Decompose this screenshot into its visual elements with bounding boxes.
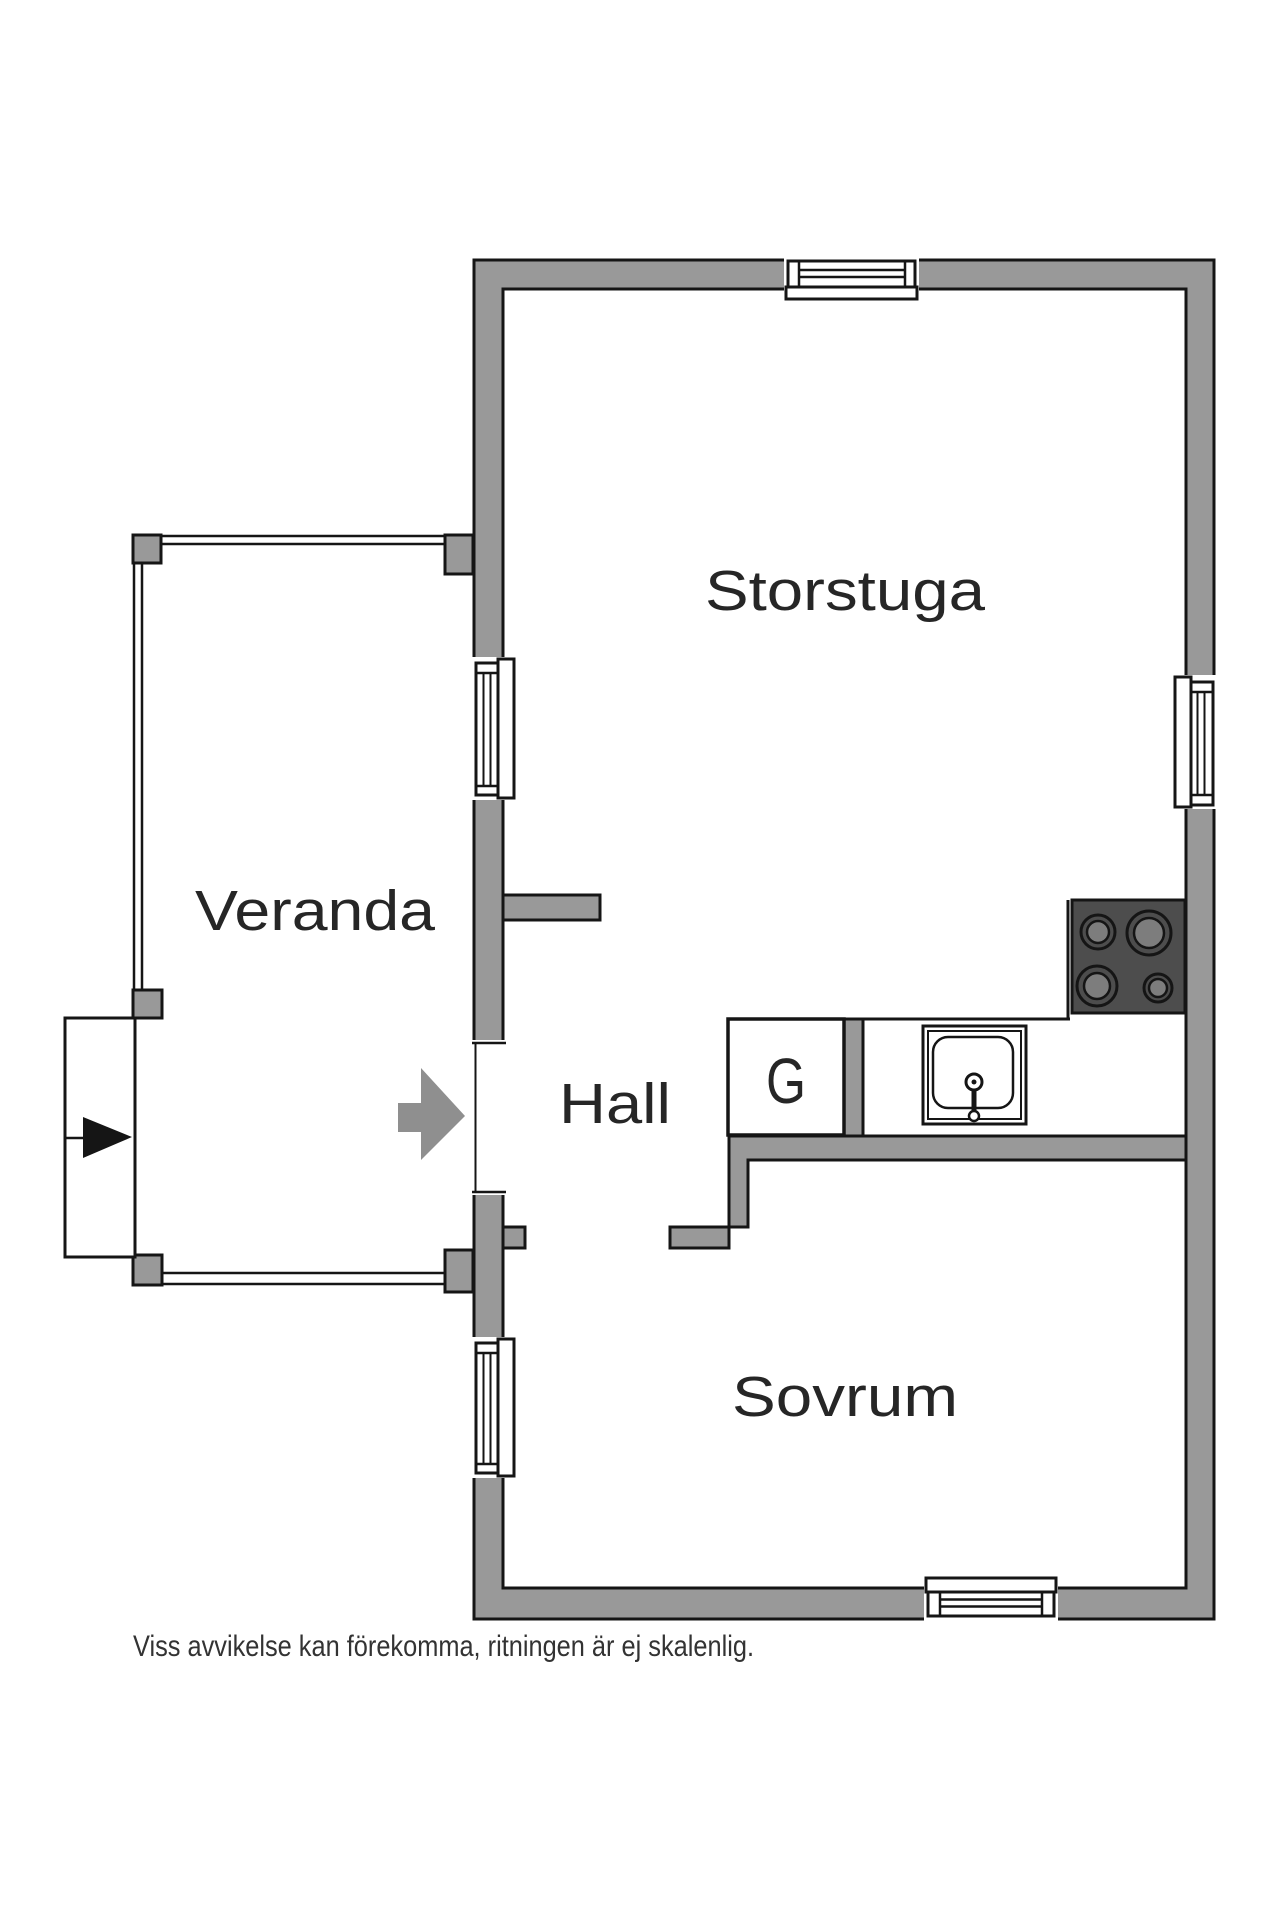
hall-sovrum-jamb-stub xyxy=(503,1227,525,1248)
window-storstuga-right xyxy=(1173,675,1218,809)
kitchen-area xyxy=(863,900,1185,1124)
window-storstuga-left xyxy=(471,657,517,800)
room-label-veranda: Veranda xyxy=(195,879,435,943)
room-label-hall: Hall xyxy=(559,1072,671,1136)
floor-plan-drawing: Storstuga Veranda Hall G Sovrum Viss avv… xyxy=(0,0,1280,1920)
veranda-rail-bottom xyxy=(161,1273,445,1284)
kitchen-sovrum-wall xyxy=(670,1136,1186,1248)
veranda-wall-notch-top xyxy=(445,535,473,574)
stove-burner-top-left xyxy=(1081,915,1115,949)
stove-burner-top-right xyxy=(1127,911,1171,955)
floor-plan-page: Storstuga Veranda Hall G Sovrum Viss avv… xyxy=(0,0,1280,1920)
veranda-post-midleft xyxy=(133,990,162,1018)
veranda-post-bottomleft xyxy=(133,1255,162,1285)
stove-burner-bottom-right xyxy=(1144,974,1172,1002)
veranda-post-topleft xyxy=(133,535,161,563)
entrance-door-opening xyxy=(471,1040,507,1195)
closet-divider-wall xyxy=(844,1019,863,1136)
room-label-sovrum: Sovrum xyxy=(732,1365,958,1429)
disclaimer-text: Viss avvikelse kan förekomma, ritningen … xyxy=(133,1630,754,1663)
closet-label-g: G xyxy=(766,1045,806,1117)
stove xyxy=(1072,900,1185,1013)
window-storstuga-top xyxy=(784,257,919,301)
stove-burner-bottom-left xyxy=(1077,966,1117,1006)
veranda-rail-left xyxy=(134,563,142,990)
veranda-rail-top xyxy=(161,536,445,544)
sink xyxy=(923,1026,1026,1124)
veranda-wall-notch-bottom xyxy=(445,1250,473,1292)
room-label-storstuga: Storstuga xyxy=(705,559,985,623)
window-sovrum-bottom xyxy=(924,1576,1058,1621)
window-sovrum-left xyxy=(471,1337,517,1478)
interior-stub-wall xyxy=(503,895,600,920)
entrance-steps-landing xyxy=(65,1018,135,1257)
entry-arrow-icon xyxy=(398,1068,465,1160)
